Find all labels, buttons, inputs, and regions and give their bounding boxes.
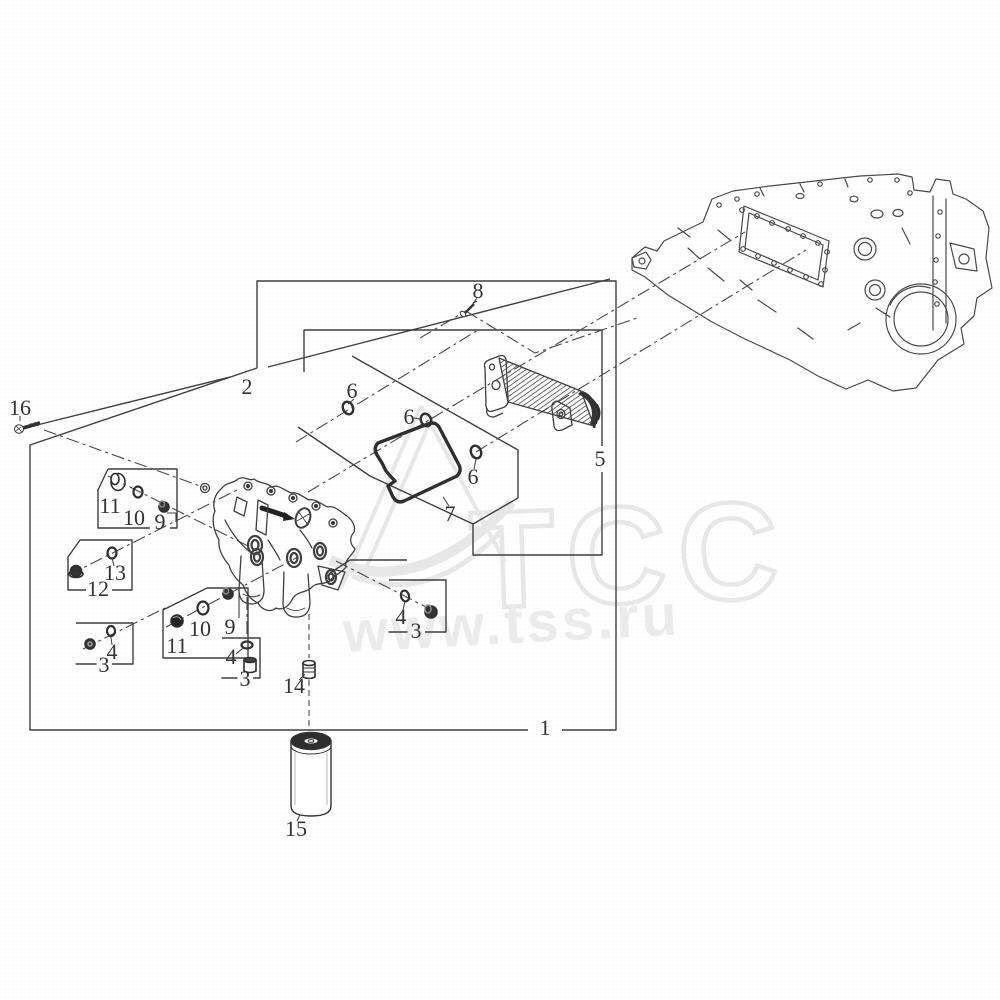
exploded-parts-diagram: ТСС www.tss.ru: [0, 0, 1000, 1000]
callout-3: 3: [97, 654, 112, 676]
callout-12: 12: [85, 578, 111, 600]
callout-11: 11: [164, 635, 189, 657]
callout-6: 6: [402, 406, 417, 428]
callout-8: 8: [471, 280, 486, 302]
diagram-canvas: ТСС www.tss.ru: [0, 0, 1000, 1000]
oil-filter: [291, 733, 331, 817]
callout-2: 2: [240, 376, 255, 398]
callout-3: 3: [238, 668, 253, 690]
callout-4: 4: [394, 606, 409, 628]
callout-9: 9: [153, 511, 168, 533]
callout-10: 10: [121, 507, 147, 529]
callout-1: 1: [538, 717, 553, 739]
callout-3: 3: [409, 620, 424, 642]
callout-9: 9: [223, 616, 238, 638]
callout-16: 16: [7, 397, 33, 419]
callout-10: 10: [187, 618, 213, 640]
callout-6: 6: [466, 466, 481, 488]
callout-6: 6: [345, 380, 360, 402]
callout-7: 7: [443, 503, 458, 525]
callout-4: 4: [224, 646, 239, 668]
callout-15: 15: [283, 818, 309, 840]
callout-5: 5: [593, 448, 608, 470]
callout-14: 14: [281, 675, 307, 697]
callout-11: 11: [97, 495, 122, 517]
